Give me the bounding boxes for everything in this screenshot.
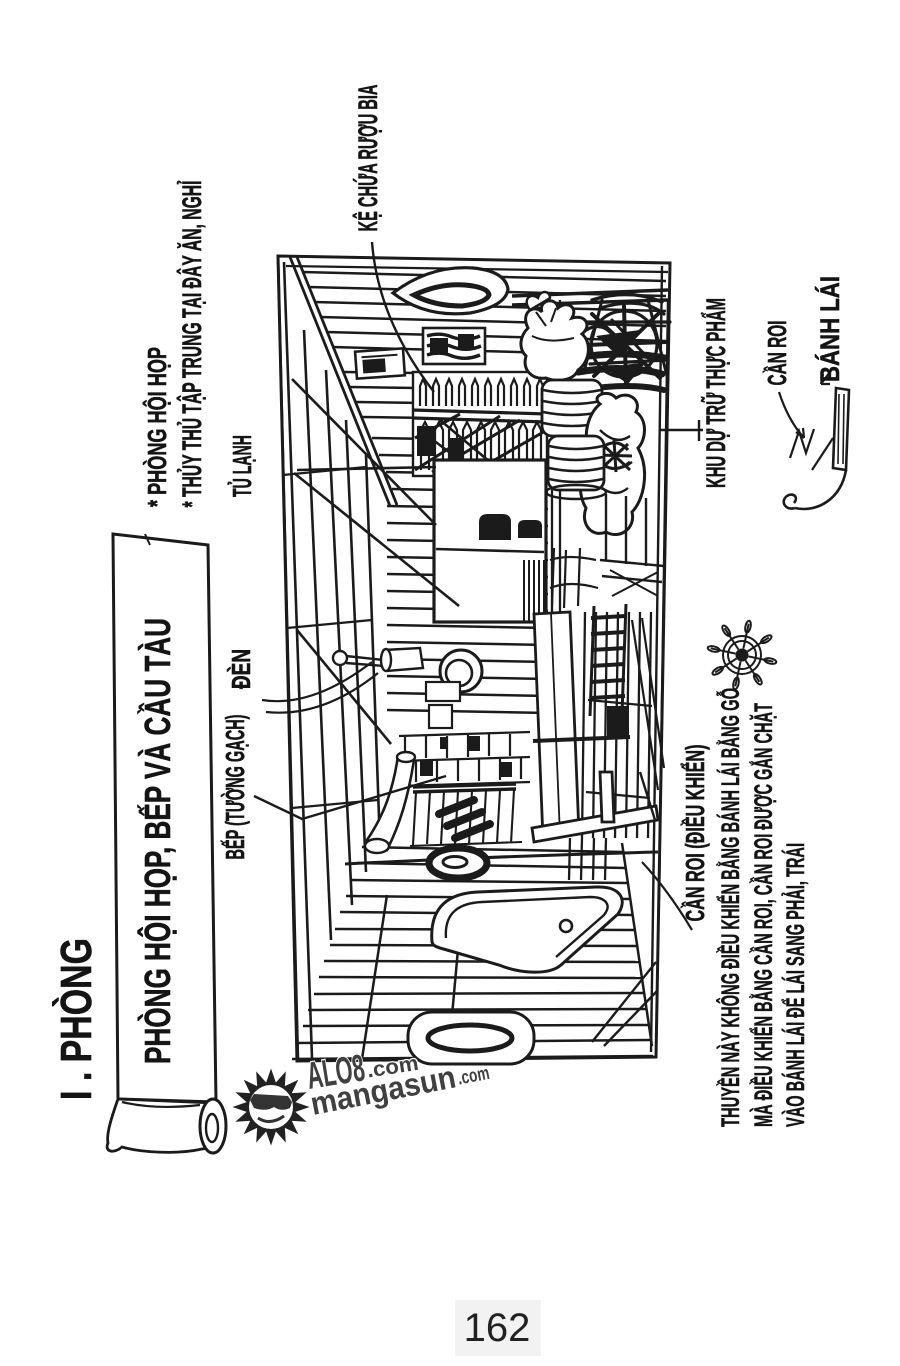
svg-text:CẦN ROI: CẦN ROI	[762, 321, 792, 386]
svg-text:162: 162	[464, 1306, 531, 1350]
svg-text:CẦN ROI (ĐIỀU KHIỂN): CẦN ROI (ĐIỀU KHIỂN)	[680, 745, 710, 922]
svg-text:* PHÒNG HỘI HỌP: * PHÒNG HỘI HỌP	[142, 347, 172, 507]
svg-text:TỦ LẠNH: TỦ LẠNH	[226, 435, 257, 497]
svg-text:VÀO BÁNH LÁI ĐỂ LÁI SANG PHẢI,: VÀO BÁNH LÁI ĐỂ LÁI SANG PHẢI, TRÁI	[780, 843, 810, 1127]
svg-text:PHÒNG HỘI HỌP, BẾP VÀ CẦU TÀU: PHÒNG HỘI HỌP, BẾP VÀ CẦU TÀU	[136, 618, 178, 1064]
svg-text:I . PHÒNG: I . PHÒNG	[51, 938, 101, 1100]
svg-text:BÁNH LÁI: BÁNH LÁI	[814, 276, 845, 382]
svg-text:KỆ CHỨA RƯỢU BIA: KỆ CHỨA RƯỢU BIA	[352, 85, 383, 232]
svg-text:ĐÈN: ĐÈN	[226, 649, 256, 689]
svg-text:* THỦY THỦ TẬP TRUNG TẠI ĐÂY Ă: * THỦY THỦ TẬP TRUNG TẠI ĐÂY ĂN, NGHỈ	[175, 180, 207, 507]
svg-text:THUYỀN NÀY KHÔNG ĐIỀU KHIỂN BẰ: THUYỀN NÀY KHÔNG ĐIỀU KHIỂN BẰNG BÁNH LÁ…	[715, 688, 745, 1127]
svg-text:KHU DỰ TRỮ THỰC PHẨM: KHU DỰ TRỮ THỰC PHẨM	[700, 298, 731, 488]
svg-text:BẾP (TƯỜNG GẠCH): BẾP (TƯỜNG GẠCH)	[220, 715, 250, 860]
svg-text:MÀ ĐIỀU KHIỂN BẰNG CẦN ROI, CẦ: MÀ ĐIỀU KHIỂN BẰNG CẦN ROI, CẦN ROI ĐƯỢC…	[748, 703, 778, 1127]
